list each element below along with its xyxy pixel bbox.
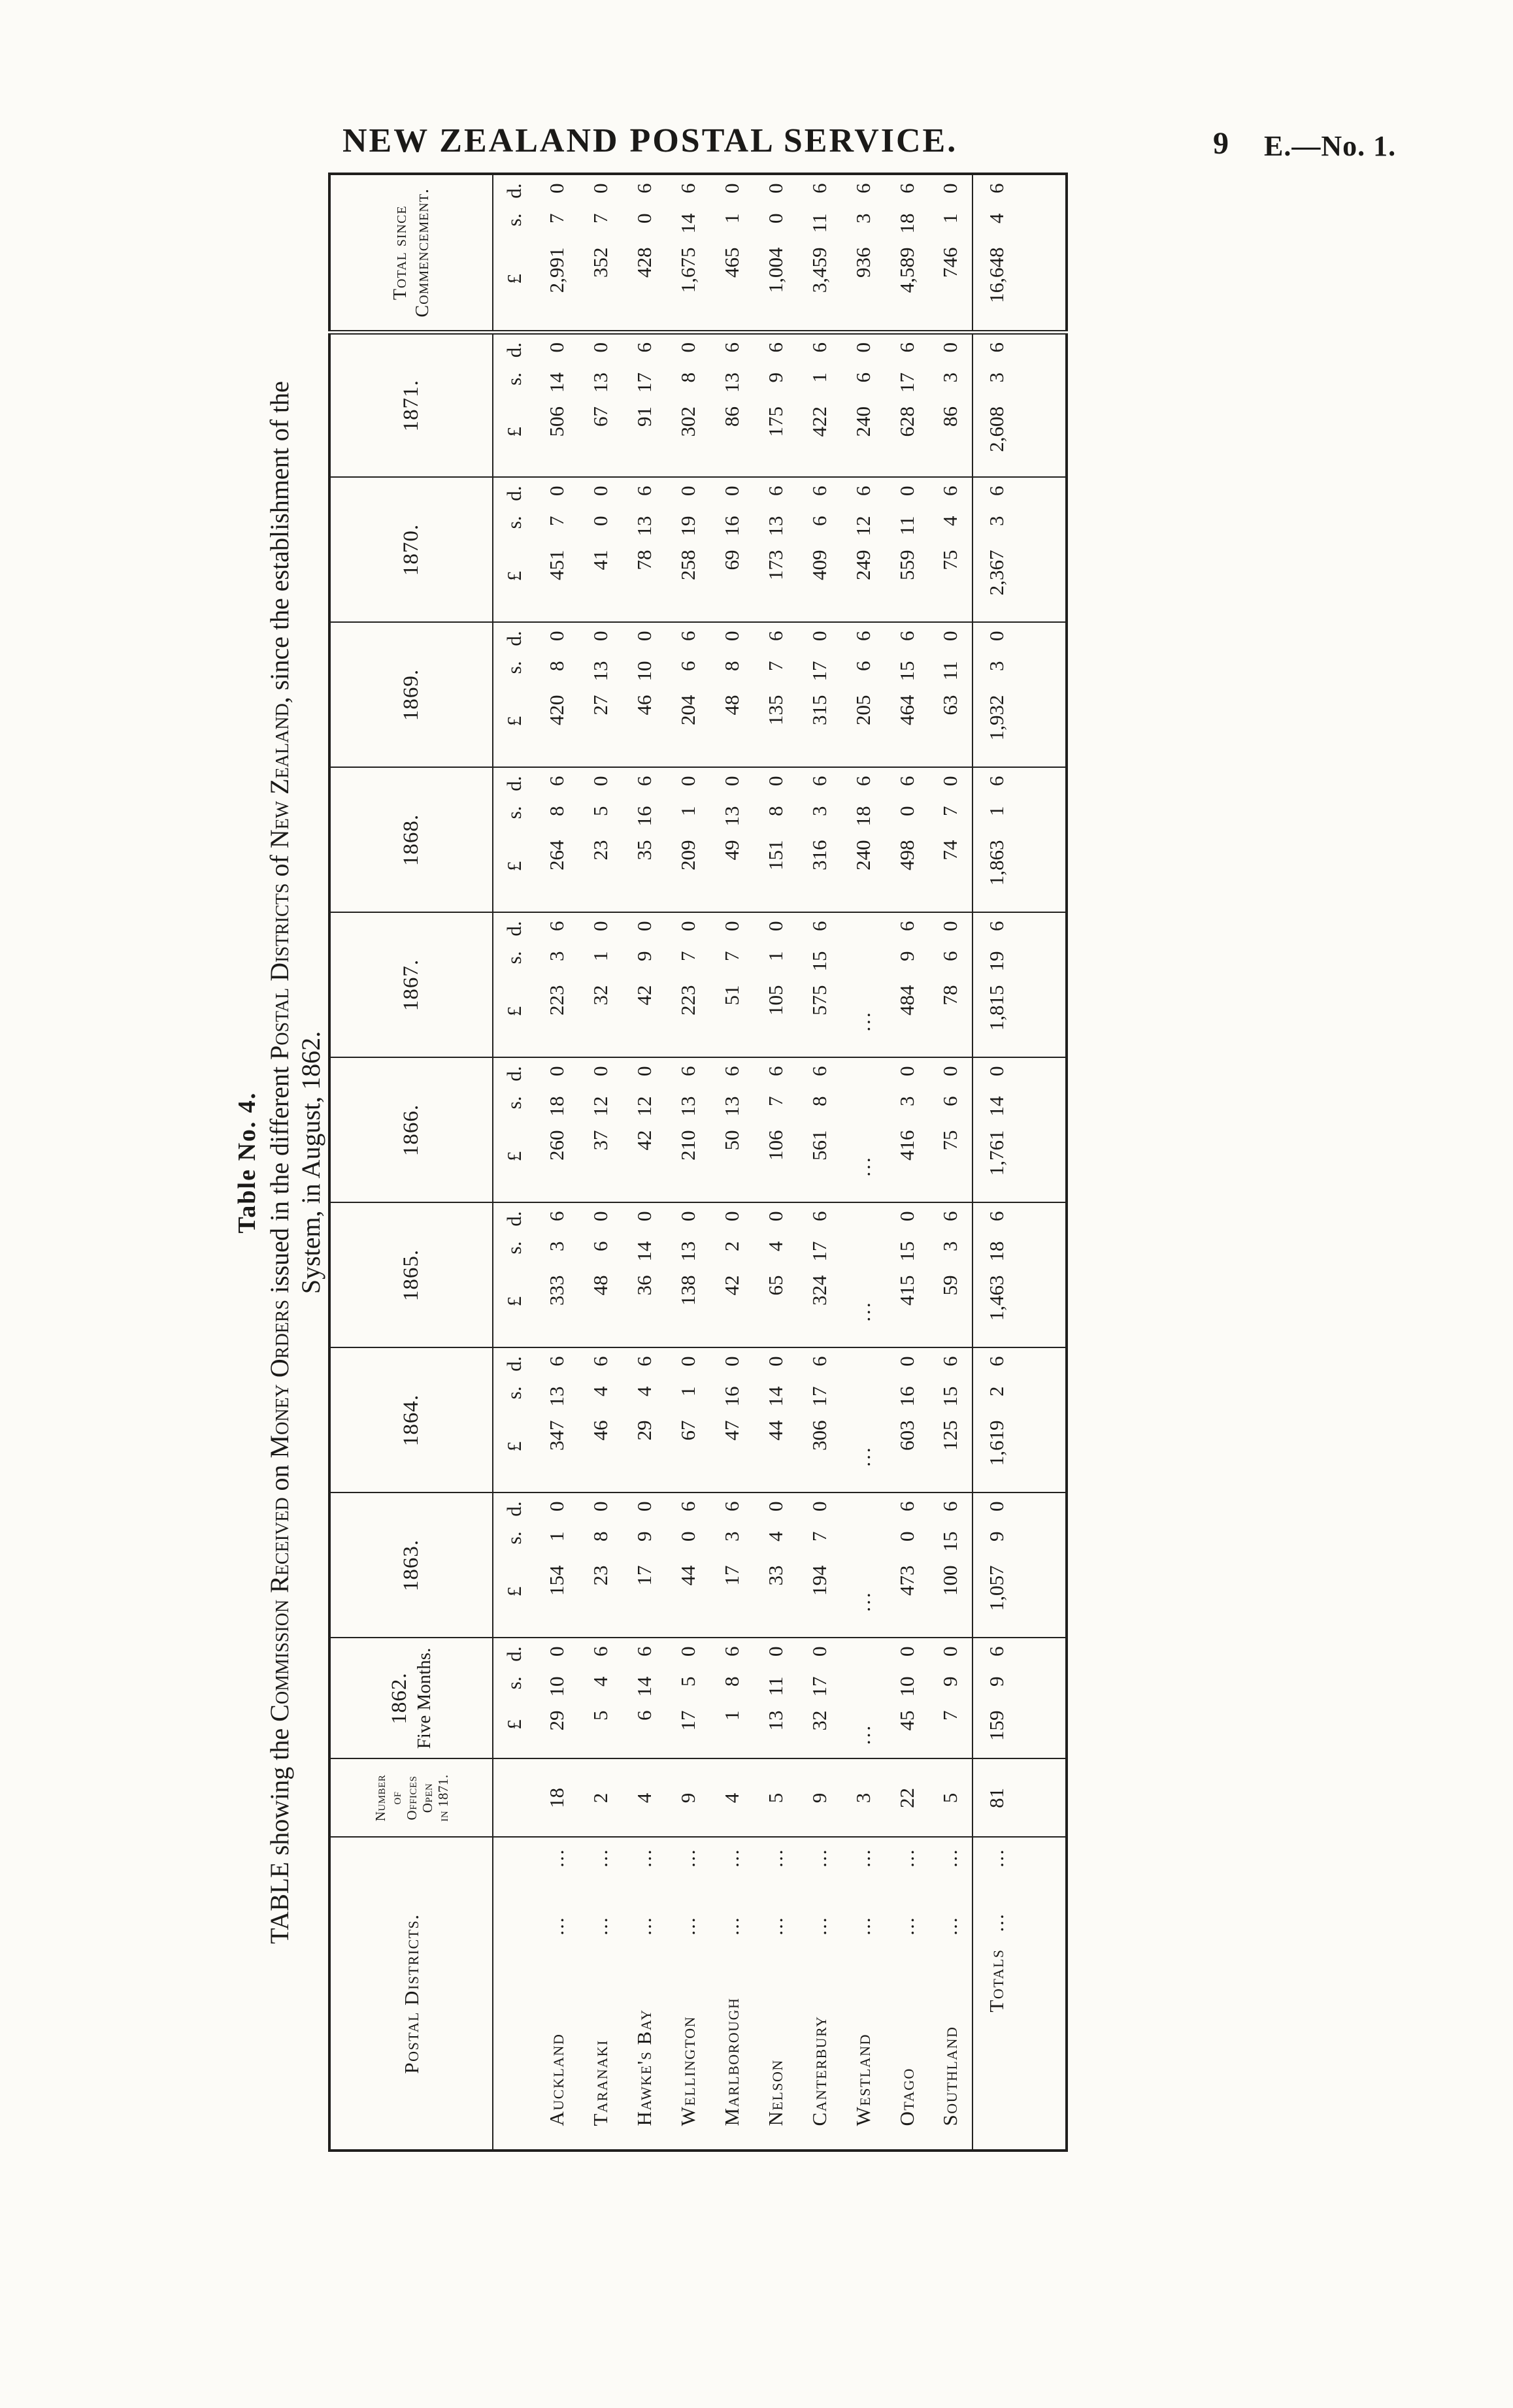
pounds-value: 205 bbox=[852, 695, 875, 767]
total-money-cell: 1,61926 bbox=[973, 1348, 1067, 1493]
money-units: £s.d. bbox=[503, 914, 526, 1057]
col-header-1868: 1868. bbox=[329, 768, 493, 913]
money-units-cell: £s.d. bbox=[493, 623, 535, 768]
pence-value: 0 bbox=[633, 1494, 656, 1532]
money-cell: 78136 bbox=[622, 478, 666, 623]
shillings-value: 9 bbox=[985, 1532, 1008, 1566]
money-cell: 4646 bbox=[578, 1348, 622, 1493]
money-value: 36140 bbox=[633, 1204, 656, 1347]
pounds-value: 3,459 bbox=[808, 248, 831, 331]
money-cell: 47160 bbox=[710, 1348, 754, 1493]
money-value: 20466 bbox=[676, 623, 700, 767]
caption-segment: Money Orders bbox=[265, 1300, 294, 1458]
pence-value: 0 bbox=[676, 1639, 700, 1677]
leader-dots: ... bbox=[808, 1917, 831, 1936]
money-value: 93636 bbox=[852, 176, 875, 331]
pounds-value: 484 bbox=[895, 985, 919, 1057]
money-cell: 86136 bbox=[710, 333, 754, 478]
money-cell: 4100 bbox=[578, 478, 622, 623]
pounds-value: 936 bbox=[852, 248, 875, 331]
pounds-value: 135 bbox=[764, 695, 788, 767]
shillings-value: 14 bbox=[985, 1097, 1008, 1130]
pence-value: 6 bbox=[852, 176, 875, 214]
shillings-value: 17 bbox=[895, 372, 919, 406]
table-sheet: Table No. 4. TABLE showing the Commissio… bbox=[230, 162, 1073, 2163]
no-data-ellipsis: ... bbox=[852, 1566, 875, 1638]
table-number-label: Table No. 4. bbox=[230, 162, 264, 2163]
pence-value: 0 bbox=[939, 623, 962, 661]
shillings-value: 9 bbox=[633, 1532, 656, 1566]
money-value: 22336 bbox=[545, 914, 569, 1057]
money-value: 790 bbox=[939, 1639, 962, 1758]
pounds-value: 23 bbox=[589, 840, 612, 912]
money-cell: 20466 bbox=[666, 623, 710, 768]
money-cell: 258190 bbox=[666, 478, 710, 623]
shillings-value: 3 bbox=[985, 661, 1008, 695]
pence-value: 6 bbox=[985, 768, 1008, 806]
units-spacer-offices bbox=[493, 1759, 535, 1838]
pounds-value: 1,863 bbox=[985, 840, 1008, 912]
pence-value: 0 bbox=[589, 768, 612, 806]
pence-value: 6 bbox=[895, 768, 919, 806]
pounds-value: 264 bbox=[545, 840, 569, 912]
pence-value: 0 bbox=[589, 335, 612, 372]
money-cell: 27130 bbox=[578, 623, 622, 768]
money-value: 7860 bbox=[939, 914, 962, 1057]
shillings-value: 7 bbox=[764, 661, 788, 695]
money-value: 46510 bbox=[720, 176, 744, 331]
money-units-cell: £s.d. bbox=[493, 174, 535, 333]
pence-value: 6 bbox=[633, 478, 656, 516]
money-value: 30280 bbox=[676, 335, 700, 477]
leader-dots: ... bbox=[808, 1838, 831, 1917]
leader-dots: ... bbox=[589, 1838, 612, 1917]
money-value: 559110 bbox=[895, 478, 919, 622]
shillings-value: 11 bbox=[895, 516, 919, 550]
money-value: 15180 bbox=[764, 768, 788, 912]
money-value: 1,61926 bbox=[985, 1349, 1008, 1493]
caption-segment: TABLE showing the bbox=[265, 1722, 294, 1944]
money-value: 249126 bbox=[852, 478, 875, 622]
money-value: 35166 bbox=[633, 768, 656, 912]
shillings-value: 14 bbox=[633, 1677, 656, 1711]
money-value: 260180 bbox=[545, 1059, 569, 1202]
pounds-value: 306 bbox=[808, 1421, 831, 1493]
shillings-value: 3 bbox=[545, 951, 569, 985]
pounds-value: 78 bbox=[633, 550, 656, 622]
pence-value: 0 bbox=[633, 914, 656, 951]
pounds-value: 175 bbox=[764, 406, 788, 477]
money-value: 4100 bbox=[589, 478, 612, 622]
money-cell: 4880 bbox=[710, 623, 754, 768]
pence-value: 6 bbox=[985, 914, 1008, 951]
district-name: Southland bbox=[939, 2026, 962, 2126]
district-name-cell: Marlborough...... bbox=[710, 1838, 754, 2151]
money-value: 258190 bbox=[676, 478, 700, 622]
money-value: 315170 bbox=[808, 623, 831, 767]
pounds-value: 5 bbox=[589, 1711, 612, 1758]
money-value: 13110 bbox=[764, 1639, 788, 1758]
shillings-value: 8 bbox=[764, 806, 788, 840]
money-value: 33336 bbox=[545, 1204, 569, 1347]
pence-value: 0 bbox=[676, 1204, 700, 1242]
money-value: 42080 bbox=[545, 623, 569, 767]
caption-line-2: System, in August, 1862. bbox=[295, 162, 327, 2163]
shillings-value: 8 bbox=[545, 661, 569, 695]
money-units: £s.d. bbox=[503, 478, 526, 622]
pounds-value: 63 bbox=[939, 695, 962, 767]
table-caption: TABLE showing the Commission Received on… bbox=[264, 162, 328, 2163]
shillings-value: 18 bbox=[545, 1097, 569, 1130]
shillings-value: 4 bbox=[985, 214, 1008, 248]
pence-value: 6 bbox=[852, 478, 875, 516]
pound-sign: £ bbox=[503, 695, 526, 767]
money-cell: 347136 bbox=[535, 1348, 578, 1493]
pence-value: 0 bbox=[545, 478, 569, 516]
money-cell: 13576 bbox=[754, 623, 797, 768]
postal-districts-commission-table: Postal Districts.NumberofOfficesOpenin 1… bbox=[328, 173, 1068, 2152]
money-cell: 35270 bbox=[578, 174, 622, 333]
totals-label-cell: Totals...... bbox=[973, 1838, 1067, 2151]
money-cell: 4290 bbox=[622, 913, 666, 1058]
caption-segment: New Zealand bbox=[265, 703, 294, 848]
money-units: £s.d. bbox=[503, 176, 526, 331]
money-value: ... bbox=[852, 1494, 875, 1638]
offices-count-cell: 3 bbox=[841, 1759, 885, 1838]
leader-dots: ... bbox=[764, 1917, 788, 1936]
money-cell: ... bbox=[841, 1348, 885, 1493]
pence-value: 6 bbox=[764, 335, 788, 372]
shillings-value: 1 bbox=[545, 1532, 569, 1566]
district-row-otago: Otago......22451004730660316041515041630… bbox=[885, 174, 929, 2151]
pound-sign: £ bbox=[503, 985, 526, 1057]
money-cell: 2380 bbox=[578, 1493, 622, 1638]
col-header-1863: 1863. bbox=[329, 1493, 493, 1638]
money-cell: 1,00400 bbox=[754, 174, 797, 333]
offices-count-cell: 2 bbox=[578, 1759, 622, 1838]
pence-value: 6 bbox=[985, 176, 1008, 214]
money-cell: 260180 bbox=[535, 1058, 578, 1203]
shillings-value: 16 bbox=[720, 516, 744, 550]
shillings-value: 9 bbox=[895, 951, 919, 985]
money-value: 3340 bbox=[764, 1494, 788, 1638]
shillings-value: 6 bbox=[939, 1097, 962, 1130]
leader-dots: ... bbox=[545, 1917, 569, 1936]
pounds-value: 32 bbox=[589, 985, 612, 1057]
units-spacer-districts bbox=[493, 1838, 535, 2151]
money-cell: 306176 bbox=[797, 1348, 841, 1493]
pounds-value: 37 bbox=[589, 1130, 612, 1202]
money-cell: 5170 bbox=[710, 913, 754, 1058]
leader-dots: ... bbox=[545, 1838, 569, 1917]
pence-value: 0 bbox=[545, 1059, 569, 1097]
shillings-value: 0 bbox=[633, 214, 656, 248]
caption-segment: Postal Districts bbox=[265, 883, 294, 1060]
total-money-cell: 2,60836 bbox=[973, 333, 1067, 478]
pound-sign: £ bbox=[503, 1566, 526, 1638]
money-units: £s.d. bbox=[503, 1059, 526, 1202]
pence-value: 6 bbox=[895, 914, 919, 951]
pounds-value: 465 bbox=[720, 248, 744, 331]
pounds-value: 506 bbox=[545, 406, 569, 477]
pence-value: 0 bbox=[808, 1494, 831, 1532]
pounds-value: 86 bbox=[720, 406, 744, 477]
money-value: 41630 bbox=[895, 1059, 919, 1202]
money-cell: 69160 bbox=[710, 478, 754, 623]
total-money-cell: 1,463186 bbox=[973, 1203, 1067, 1348]
pounds-value: 347 bbox=[545, 1421, 569, 1493]
money-cell: 6540 bbox=[754, 1203, 797, 1348]
col-header-1866: 1866. bbox=[329, 1058, 493, 1203]
money-value: 1790 bbox=[633, 1494, 656, 1638]
pence-value: 6 bbox=[852, 623, 875, 661]
money-value: 1736 bbox=[720, 1494, 744, 1638]
shillings-value: 4 bbox=[764, 1532, 788, 1566]
pounds-value: 249 bbox=[852, 550, 875, 622]
money-cell: 506140 bbox=[535, 333, 578, 478]
money-cell: 20566 bbox=[841, 623, 885, 768]
money-cell: 15180 bbox=[754, 768, 797, 913]
pounds-value: 603 bbox=[895, 1421, 919, 1493]
pounds-value: 416 bbox=[895, 1130, 919, 1202]
shillings-value: 8 bbox=[720, 1677, 744, 1711]
money-cell: 3340 bbox=[754, 1493, 797, 1638]
money-value: 4406 bbox=[676, 1494, 700, 1638]
shillings-value: 15 bbox=[939, 1387, 962, 1421]
pounds-value: 67 bbox=[676, 1421, 700, 1493]
pounds-value: 2,608 bbox=[985, 406, 1008, 477]
money-cell: 3,459116 bbox=[797, 174, 841, 333]
shillings-value: 15 bbox=[808, 951, 831, 985]
pence-value: 0 bbox=[676, 478, 700, 516]
shillings-value: 17 bbox=[633, 372, 656, 406]
pounds-value: 352 bbox=[589, 248, 612, 331]
money-cell: 1790 bbox=[622, 1493, 666, 1638]
money-cell: 2350 bbox=[578, 768, 622, 913]
money-cell: 37120 bbox=[578, 1058, 622, 1203]
pence-value: 0 bbox=[895, 1204, 919, 1242]
shillings-value: 0 bbox=[895, 806, 919, 840]
money-units-cell: £s.d. bbox=[493, 1638, 535, 1759]
shillings-value: 1 bbox=[720, 214, 744, 248]
shillings-value: 8 bbox=[808, 1097, 831, 1130]
no-data-ellipsis: ... bbox=[852, 1130, 875, 1202]
shillings-value: 3 bbox=[939, 1242, 962, 1276]
pence-value: 6 bbox=[808, 1059, 831, 1097]
totals-label: Totals bbox=[985, 1949, 1008, 2012]
district-name-line: Nelson...... bbox=[764, 1838, 788, 2150]
money-cell: 22370 bbox=[666, 913, 710, 1058]
money-cell: 415150 bbox=[885, 1203, 929, 1348]
col-header-1862: 1862.Five Months. bbox=[329, 1638, 493, 1759]
pounds-value: 46 bbox=[633, 695, 656, 767]
district-row-auckland: Auckland......18291001541034713633336260… bbox=[535, 174, 578, 2151]
money-value: 32170 bbox=[808, 1639, 831, 1758]
offices-count-cell: 9 bbox=[797, 1759, 841, 1838]
shillings-value: 4 bbox=[939, 516, 962, 550]
pounds-value: 51 bbox=[720, 985, 744, 1057]
pence-value: 6 bbox=[808, 914, 831, 951]
shillings-value: 17 bbox=[808, 1677, 831, 1711]
money-value: 20566 bbox=[852, 623, 875, 767]
pounds-value: 420 bbox=[545, 695, 569, 767]
district-name-line: Canterbury...... bbox=[808, 1838, 831, 2150]
shillings-value: 19 bbox=[985, 951, 1008, 985]
money-cell: 315170 bbox=[797, 623, 841, 768]
money-cell: 4860 bbox=[578, 1203, 622, 1348]
money-value: 2,99170 bbox=[545, 176, 569, 331]
pence-label: d. bbox=[503, 1349, 526, 1387]
money-units-cell: £s.d. bbox=[493, 1203, 535, 1348]
money-value: 628176 bbox=[895, 335, 919, 477]
money-value: 7560 bbox=[939, 1059, 962, 1202]
shillings-value: 9 bbox=[633, 951, 656, 985]
pounds-value: 44 bbox=[764, 1421, 788, 1493]
total-money-cell: 1,93230 bbox=[973, 623, 1067, 768]
caption-segment: , since the establishment of the bbox=[265, 381, 294, 703]
money-cell: 138130 bbox=[666, 1203, 710, 1348]
shillings-value: 6 bbox=[589, 1242, 612, 1276]
money-value: 3210 bbox=[589, 914, 612, 1057]
money-units-cell: £s.d. bbox=[493, 768, 535, 913]
total-money-cell: 2,36736 bbox=[973, 478, 1067, 623]
money-value: 210136 bbox=[676, 1059, 700, 1202]
money-cell: 1,675146 bbox=[666, 174, 710, 333]
pounds-value: 154 bbox=[545, 1566, 569, 1638]
pence-value: 0 bbox=[589, 1494, 612, 1532]
money-value: 49806 bbox=[895, 768, 919, 912]
pounds-value: 223 bbox=[676, 985, 700, 1057]
leader-dots: ... bbox=[633, 1917, 656, 1936]
pounds-value: 17 bbox=[676, 1711, 700, 1758]
pounds-value: 47 bbox=[720, 1421, 744, 1493]
money-cell: 7546 bbox=[929, 478, 973, 623]
district-name-cell: Auckland...... bbox=[535, 1838, 578, 2151]
pounds-value: 91 bbox=[633, 406, 656, 477]
leader-dots: ... bbox=[939, 1838, 962, 1917]
pounds-value: 36 bbox=[633, 1276, 656, 1347]
money-value: 4220 bbox=[720, 1204, 744, 1347]
shillings-value: 18 bbox=[852, 806, 875, 840]
pounds-value: 4,589 bbox=[895, 248, 919, 331]
money-value: 22370 bbox=[676, 914, 700, 1057]
money-value: 4880 bbox=[720, 623, 744, 767]
money-cell: 464156 bbox=[885, 623, 929, 768]
money-value: 29100 bbox=[545, 1639, 569, 1758]
pounds-value: 575 bbox=[808, 985, 831, 1057]
money-units: £s.d. bbox=[503, 1494, 526, 1638]
shillings-label: s. bbox=[503, 951, 526, 985]
totals-row: Totals......81159961,057901,619261,46318… bbox=[973, 174, 1067, 2151]
money-cell: 186 bbox=[710, 1638, 754, 1759]
money-cell: 10510 bbox=[754, 913, 797, 1058]
shillings-value: 0 bbox=[895, 1532, 919, 1566]
pence-value: 6 bbox=[720, 1639, 744, 1677]
shillings-value: 7 bbox=[589, 214, 612, 248]
pounds-value: 48 bbox=[589, 1276, 612, 1347]
money-cell: 1750 bbox=[666, 1638, 710, 1759]
shillings-value: 1 bbox=[676, 1387, 700, 1421]
shillings-value: 18 bbox=[985, 1242, 1008, 1276]
money-value: ... bbox=[852, 1639, 875, 1758]
money-value: 1,463186 bbox=[985, 1204, 1008, 1347]
shillings-value: 0 bbox=[764, 214, 788, 248]
money-value: 4860 bbox=[589, 1204, 612, 1347]
pence-value: 6 bbox=[545, 1349, 569, 1387]
money-cell: 63110 bbox=[929, 623, 973, 768]
shillings-value: 6 bbox=[808, 516, 831, 550]
pence-value: 0 bbox=[676, 914, 700, 951]
money-value: 47306 bbox=[895, 1494, 919, 1638]
money-value: 506140 bbox=[545, 335, 569, 477]
shillings-value: 17 bbox=[808, 1242, 831, 1276]
pence-value: 0 bbox=[895, 478, 919, 516]
pence-value: 0 bbox=[764, 1204, 788, 1242]
shillings-value: 3 bbox=[895, 1097, 919, 1130]
leader-dots: ... bbox=[852, 1838, 875, 1917]
pounds-value: 75 bbox=[939, 550, 962, 622]
total-money-cell: 16,64846 bbox=[973, 174, 1067, 333]
shillings-value: 14 bbox=[545, 372, 569, 406]
shillings-value: 6 bbox=[852, 372, 875, 406]
money-units: £s.d. bbox=[503, 1639, 526, 1758]
no-data-ellipsis: ... bbox=[852, 1276, 875, 1347]
leader-dots: ... bbox=[676, 1917, 700, 1936]
money-units-cell: £s.d. bbox=[493, 1493, 535, 1638]
money-value: 138130 bbox=[676, 1204, 700, 1347]
pounds-value: 32 bbox=[808, 1711, 831, 1758]
shillings-value: 4 bbox=[589, 1677, 612, 1711]
shillings-value: 9 bbox=[985, 1677, 1008, 1711]
money-value: 240186 bbox=[852, 768, 875, 912]
money-cell: ... bbox=[841, 1203, 885, 1348]
shillings-value: 4 bbox=[633, 1387, 656, 1421]
pence-value: 6 bbox=[720, 335, 744, 372]
pounds-value: 194 bbox=[808, 1566, 831, 1638]
pence-value: 0 bbox=[764, 1639, 788, 1677]
money-cell: 45100 bbox=[885, 1638, 929, 1759]
shillings-value: 10 bbox=[545, 1677, 569, 1711]
money-value: 4646 bbox=[589, 1349, 612, 1493]
caption-segment: of bbox=[265, 848, 294, 883]
pounds-value: 106 bbox=[764, 1130, 788, 1202]
money-value: 6710 bbox=[676, 1349, 700, 1493]
money-value: 69160 bbox=[720, 478, 744, 622]
shillings-label: s. bbox=[503, 516, 526, 550]
money-cell: 48496 bbox=[885, 913, 929, 1058]
district-name-line: Westland...... bbox=[852, 1838, 875, 2150]
money-cell: 7470 bbox=[929, 768, 973, 913]
shillings-label: s. bbox=[503, 1677, 526, 1711]
money-cell: 4220 bbox=[710, 1203, 754, 1348]
shillings-value: 14 bbox=[676, 214, 700, 248]
pence-value: 6 bbox=[676, 176, 700, 214]
district-row-westland: Westland......3..................2401862… bbox=[841, 174, 885, 2151]
pounds-value: 74 bbox=[939, 840, 962, 912]
total-money-cell: 1,05790 bbox=[973, 1493, 1067, 1638]
pence-value: 0 bbox=[939, 768, 962, 806]
pounds-value: 173 bbox=[764, 550, 788, 622]
money-value: 1,86316 bbox=[985, 768, 1008, 912]
shillings-value: 17 bbox=[808, 661, 831, 695]
money-units: £s.d. bbox=[503, 623, 526, 767]
money-value: 20910 bbox=[676, 768, 700, 912]
district-name-cell: Taranaki...... bbox=[578, 1838, 622, 2151]
money-value: 74610 bbox=[939, 176, 962, 331]
pence-value: 0 bbox=[676, 768, 700, 806]
shillings-value: 8 bbox=[676, 372, 700, 406]
money-cell: 91176 bbox=[622, 333, 666, 478]
